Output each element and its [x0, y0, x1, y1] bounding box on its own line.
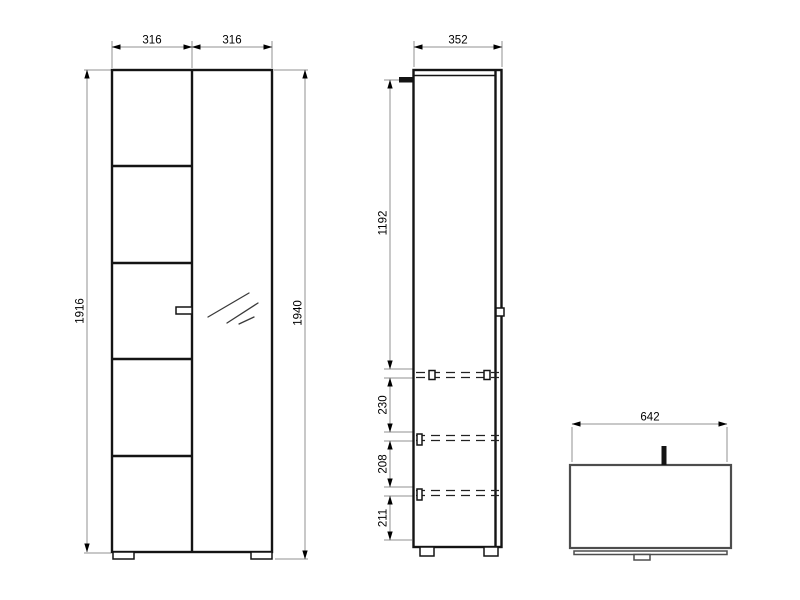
bench-outline: [570, 465, 731, 548]
technical-drawing-canvas: 316 316 1916 1940 352: [0, 0, 800, 600]
shelf-pin: [484, 371, 490, 380]
dim-label-door-right-width: 316: [222, 35, 241, 47]
front-door-handle: [176, 307, 192, 314]
dim-label-depth: 352: [448, 35, 467, 47]
dim-label-shelf-3: 211: [378, 509, 390, 527]
shelf-pin: [417, 434, 422, 445]
dim-label-shelf-1: 230: [378, 395, 390, 414]
side-foot-left: [420, 547, 434, 556]
front-view: 316 316 1916 1940: [75, 35, 309, 560]
bench-view: 642: [570, 412, 731, 561]
side-foot-right: [484, 547, 498, 556]
shelf-pin: [429, 371, 435, 380]
side-door-handle: [496, 308, 504, 316]
front-foot-left: [113, 552, 134, 559]
dim-label-door-left-width: 316: [142, 35, 161, 47]
side-cabinet-outline: [414, 70, 502, 547]
shelf-pin: [417, 489, 422, 500]
drawing-svg: 316 316 1916 1940 352: [0, 0, 800, 600]
dim-label-body-height: 1916: [75, 298, 87, 324]
dim-label-bench-width: 642: [640, 412, 659, 424]
bench-handle: [662, 446, 667, 465]
front-foot-right: [251, 552, 272, 559]
wall-bracket: [399, 77, 414, 83]
side-view: 352 1192 230 208 211: [378, 35, 505, 557]
dim-label-top-section: 1192: [378, 211, 390, 236]
dim-label-total-height: 1940: [293, 300, 305, 326]
bench-center-foot: [634, 555, 650, 561]
dim-label-shelf-2: 208: [378, 454, 390, 473]
